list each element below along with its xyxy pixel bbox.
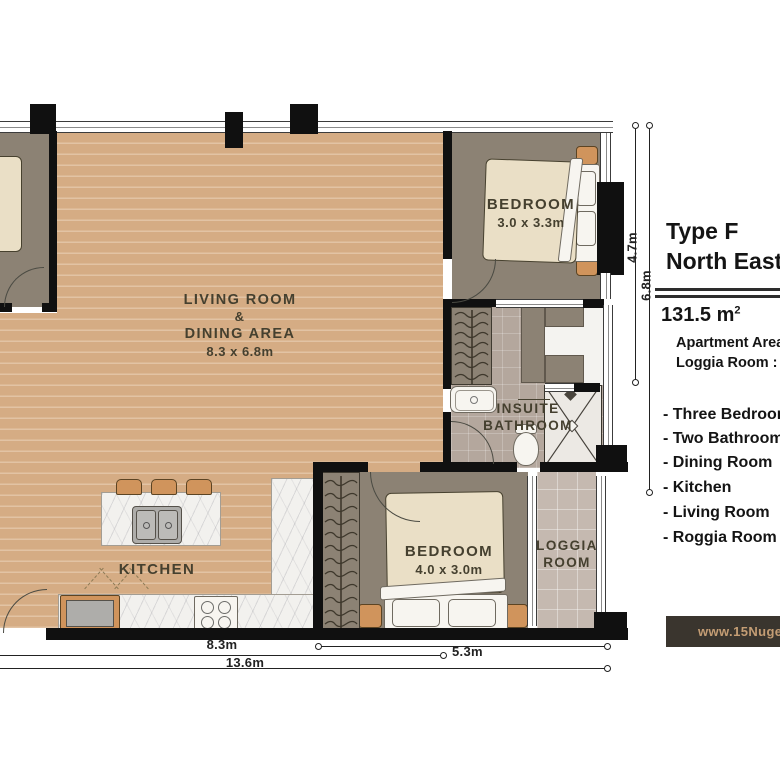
window-band-right (600, 133, 611, 183)
feature-item: - Two Bathroom (663, 430, 780, 448)
room-name: LIVING ROOM (155, 291, 325, 309)
bathroom-pointer-line (518, 399, 550, 400)
apartment-area-line: Apartment Area : (676, 335, 780, 351)
feature-item: - Three Bedroom (663, 406, 780, 424)
wall-bottom (46, 628, 628, 640)
dim-line-6-8 (649, 129, 650, 491)
toilet-bowl (513, 432, 539, 466)
room-dims: 4.0 x 3.0m (389, 562, 509, 578)
wall-segment (49, 131, 57, 307)
living-room-label: LIVING ROOM & DINING AREA 8.3 x 6.8m (155, 291, 325, 360)
closet-shelf (521, 307, 545, 383)
website-url: www.15Nugen (698, 624, 780, 639)
bar-stool (116, 479, 142, 495)
closet-shelf (545, 355, 584, 383)
dim-line-13-6 (0, 668, 608, 669)
clothes-icon (452, 308, 493, 386)
dim-endpoint (604, 643, 611, 650)
feature-item: - Roggia Room (663, 529, 777, 547)
unit-orientation: North East (666, 248, 780, 275)
bathroom-label: INSUITE BATHROOM (468, 401, 588, 435)
column (290, 104, 318, 134)
left-bedroom-bed (0, 156, 22, 252)
wall-corner (596, 445, 627, 472)
dim-endpoint (646, 122, 653, 129)
room-name: BEDROOM (471, 196, 591, 215)
loggia-label: LOGGIA ROOM (517, 538, 617, 572)
room-dims: 3.0 x 3.3m (471, 215, 591, 231)
dim-label-4-7: 4.7m (625, 224, 640, 272)
area-value: 131.5 m (661, 304, 734, 326)
floor-plan-page: LIVING ROOM & DINING AREA 8.3 x 6.8m BED… (0, 0, 780, 780)
bar-stool (186, 479, 212, 495)
dim-label-5-3: 5.3m (452, 644, 502, 659)
dim-endpoint (604, 665, 611, 672)
dim-label-13-6: 13.6m (210, 655, 280, 670)
bed-pillow (392, 599, 440, 627)
kitchen-label: KITCHEN (97, 561, 217, 580)
divider-rule (655, 288, 780, 298)
website-bar: www.15Nugen (666, 616, 780, 647)
wall-segment (443, 131, 452, 259)
room-name: INSUITE (468, 401, 588, 418)
room-name: BATHROOM (468, 418, 588, 435)
bedroom1-label: BEDROOM 3.0 x 3.3m (471, 196, 591, 231)
area-sup: 2 (734, 304, 740, 316)
nightstand (358, 604, 382, 628)
sink-drain (143, 522, 150, 529)
window-band-right (603, 305, 613, 465)
room-name: KITCHEN (97, 561, 217, 580)
bed-pillow (448, 599, 496, 627)
room-name: BEDROOM (389, 543, 509, 562)
wall-segment (42, 303, 57, 312)
column (225, 112, 243, 148)
wall-segment (443, 412, 451, 464)
sliding-door-band (496, 299, 583, 308)
dim-endpoint (440, 652, 447, 659)
unit-type-title: Type F (666, 218, 738, 245)
dim-label-8-3: 8.3m (190, 637, 254, 652)
feature-item: - Living Room (663, 504, 770, 522)
clothes-icon (322, 473, 361, 631)
bedroom2-label: BEDROOM 4.0 x 3.0m (389, 543, 509, 578)
closet-shelf (545, 307, 584, 327)
wall-segment (574, 383, 600, 392)
sink-drain (165, 522, 172, 529)
room-dims: 8.3 x 6.8m (155, 344, 325, 360)
feature-item: - Dining Room (663, 454, 772, 472)
room-name: & (155, 309, 325, 325)
room-name: LOGGIA (517, 538, 617, 555)
feature-item: - Kitchen (663, 479, 731, 497)
room-name: ROOM (517, 555, 617, 572)
dim-label-6-8: 6.8m (639, 262, 654, 310)
column (30, 104, 56, 134)
dim-endpoint (315, 643, 322, 650)
wall-segment (597, 182, 624, 275)
room-name: DINING AREA (155, 325, 325, 343)
kitchen-counter-side (271, 478, 315, 598)
wall-segment (443, 299, 451, 389)
wall-segment (313, 462, 323, 632)
dim-endpoint (646, 489, 653, 496)
fridge (66, 600, 114, 627)
sliding-door-band (545, 383, 574, 392)
wall-segment (583, 299, 604, 308)
hall-wardrobe (451, 307, 492, 385)
bar-stool (151, 479, 177, 495)
dim-endpoint (632, 122, 639, 129)
loggia-area-line: Loggia Room : (676, 355, 778, 371)
dim-endpoint (632, 379, 639, 386)
window-band-right (600, 273, 611, 299)
unit-area: 131.5 m2 (661, 304, 741, 327)
bedroom2-wardrobe (321, 472, 360, 630)
stove-burner (218, 601, 231, 614)
stove-burner (201, 601, 214, 614)
